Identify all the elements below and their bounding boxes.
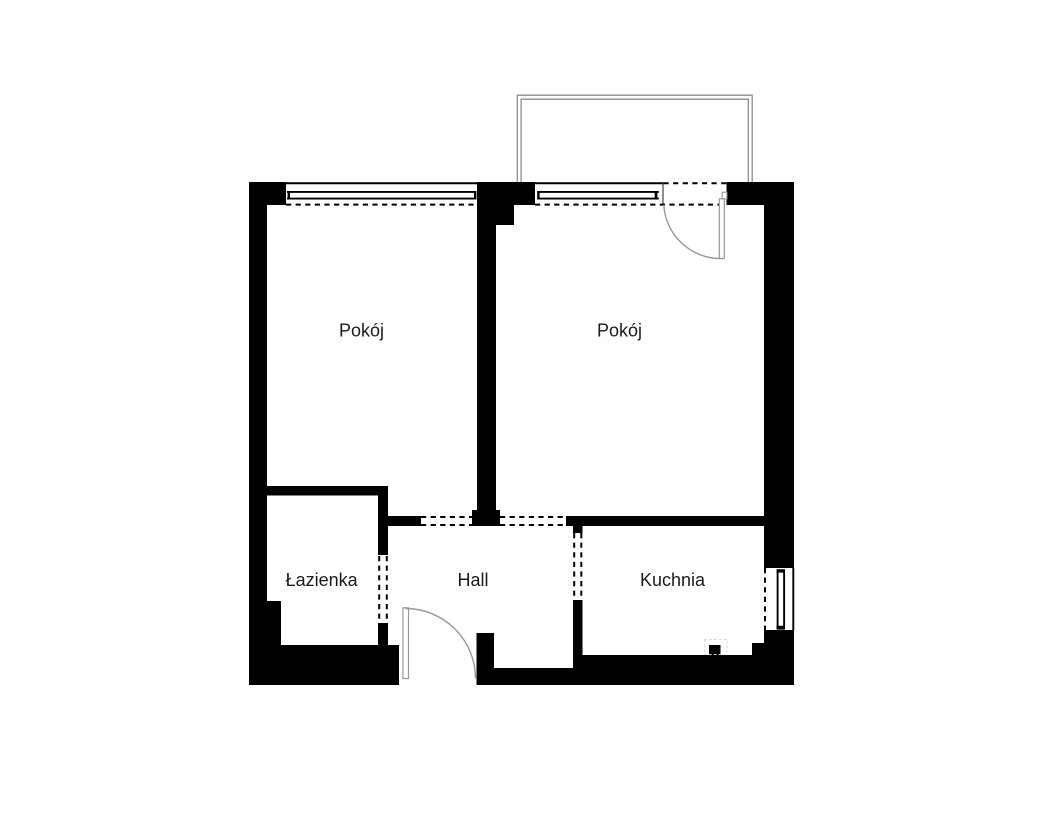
- svg-text:Pokój: Pokój: [339, 320, 384, 340]
- svg-text:Kuchnia: Kuchnia: [640, 570, 706, 590]
- svg-text:Pokój: Pokój: [597, 320, 642, 340]
- svg-text:Hall: Hall: [457, 570, 488, 590]
- svg-text:Łazienka: Łazienka: [286, 570, 359, 590]
